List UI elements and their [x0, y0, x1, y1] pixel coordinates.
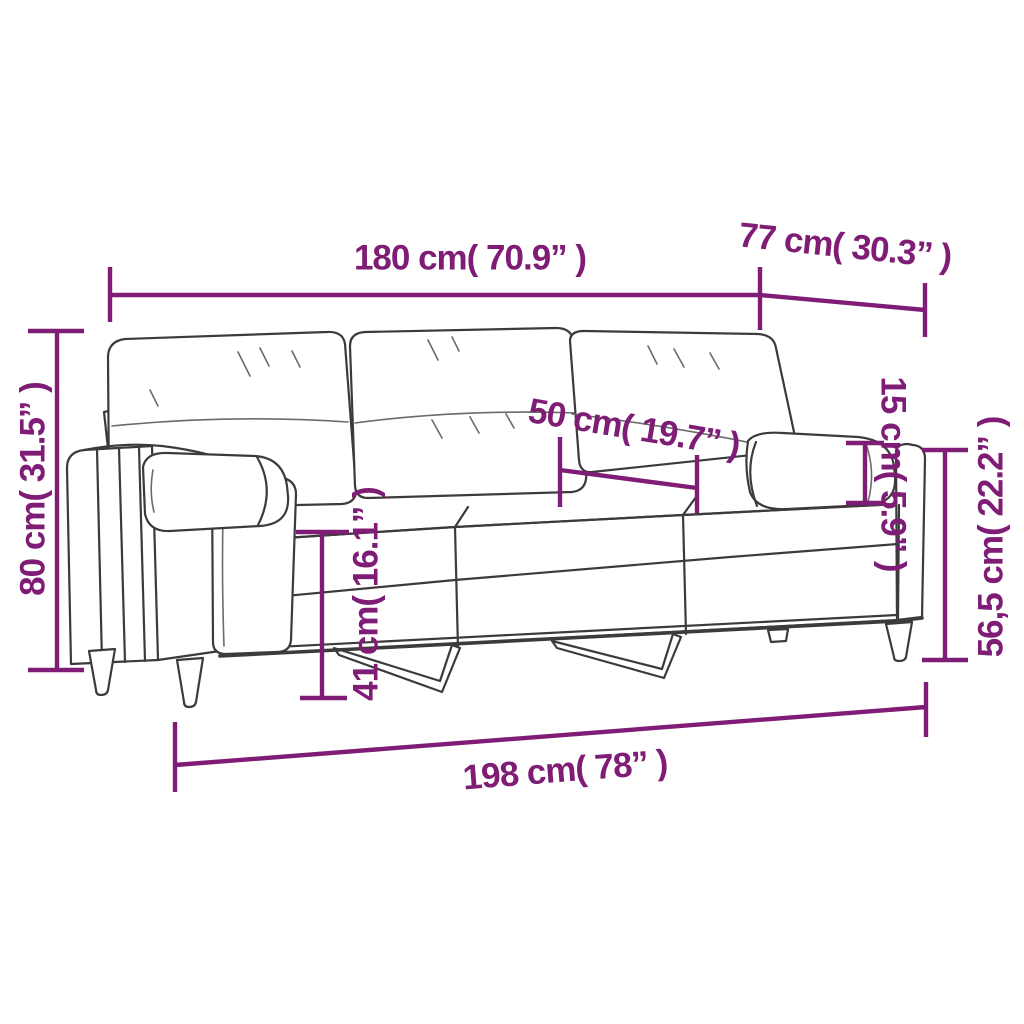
- tapered-leg: [89, 649, 115, 695]
- tapered-leg: [886, 622, 912, 661]
- dim-line-armrest-height: [922, 450, 968, 660]
- sofa-line-drawing: [67, 328, 925, 707]
- dimension-label-back-height: 80 cm( 31.5” ): [16, 382, 51, 596]
- dimension-label-armrest-height: 56,5 cm( 22.2” ): [974, 417, 1009, 658]
- tapered-leg: [177, 658, 203, 707]
- dimension-diagram: 180 cm( 70.9” ) 77 cm( 30.3” ) 80 cm( 31…: [0, 0, 1024, 1024]
- stub-leg: [768, 629, 788, 642]
- dimension-label-backrest-width: 180 cm( 70.9” ): [354, 241, 586, 276]
- dimension-label-bolster-height: 15 cm( 5.9” ): [876, 376, 911, 571]
- dimension-label-seat-height: 41 cm( 16.1” ): [349, 487, 384, 701]
- bolster-pillow-left: [143, 453, 288, 531]
- metal-sled-leg: [552, 634, 681, 678]
- seat-base: [220, 504, 922, 656]
- dim-line-depth: [760, 283, 925, 337]
- sofa-illustration: [0, 0, 1024, 1024]
